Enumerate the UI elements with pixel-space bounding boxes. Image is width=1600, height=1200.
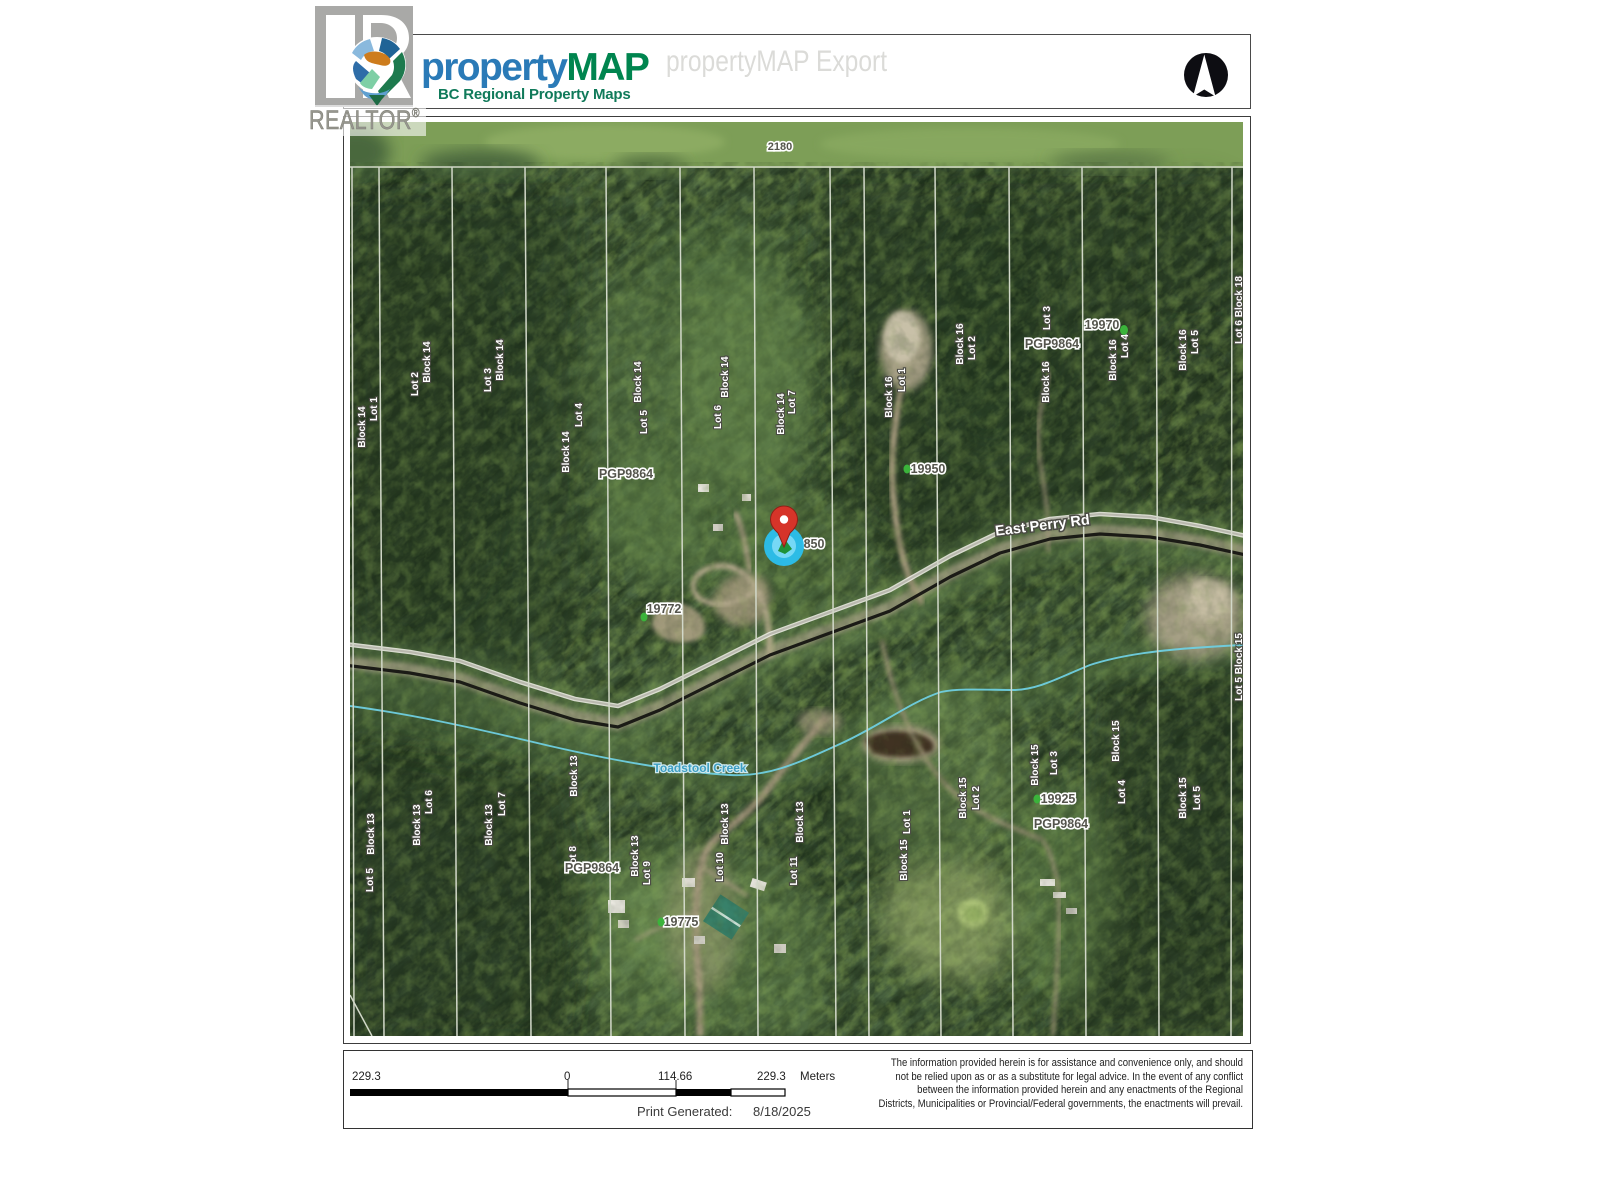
svg-text:Lot 1: Lot 1 — [369, 397, 380, 421]
svg-text:Block 15: Block 15 — [899, 839, 910, 881]
svg-text:PGP9864: PGP9864 — [565, 861, 619, 875]
svg-text:Block 14: Block 14 — [776, 393, 787, 435]
svg-text:Lot 4: Lot 4 — [574, 403, 585, 427]
svg-text:Block 14: Block 14 — [495, 339, 506, 381]
svg-text:19775: 19775 — [664, 915, 699, 929]
svg-text:Toadstool Creek: Toadstool Creek — [653, 761, 746, 775]
svg-text:Lot 4: Lot 4 — [1120, 334, 1131, 358]
svg-text:Block 13: Block 13 — [795, 801, 806, 843]
svg-text:Lot 5: Lot 5 — [1192, 786, 1203, 810]
svg-text:Block 15: Block 15 — [1111, 720, 1122, 762]
svg-text:850: 850 — [804, 537, 825, 551]
svg-text:Lot 1: Lot 1 — [897, 368, 908, 392]
svg-text:Lot 2: Lot 2 — [967, 336, 978, 360]
svg-text:Block 16: Block 16 — [884, 376, 895, 418]
svg-text:19950: 19950 — [911, 462, 946, 476]
svg-text:Lot 7: Lot 7 — [497, 792, 508, 816]
svg-text:Lot 4: Lot 4 — [1117, 780, 1128, 804]
svg-text:Lot 1: Lot 1 — [902, 810, 913, 834]
svg-text:Block 14: Block 14 — [357, 406, 368, 448]
svg-text:Lot 11: Lot 11 — [789, 856, 800, 885]
svg-text:Block 16: Block 16 — [1041, 361, 1052, 403]
svg-text:19772: 19772 — [647, 602, 682, 616]
svg-text:Block 13: Block 13 — [412, 804, 423, 846]
svg-text:Block 15: Block 15 — [1178, 777, 1189, 819]
svg-text:Block 16: Block 16 — [1108, 339, 1119, 381]
svg-text:Block 13: Block 13 — [366, 813, 377, 855]
svg-text:19925: 19925 — [1041, 792, 1076, 806]
svg-text:Block 14: Block 14 — [422, 341, 433, 383]
svg-text:Lot 5 Block 15: Lot 5 Block 15 — [1234, 633, 1243, 701]
svg-text:Block 14: Block 14 — [633, 361, 644, 403]
svg-text:2180: 2180 — [768, 141, 792, 153]
svg-text:Block 16: Block 16 — [955, 323, 966, 365]
svg-text:PGP9864: PGP9864 — [599, 467, 653, 481]
svg-text:Lot 3: Lot 3 — [483, 368, 494, 392]
svg-text:Lot 6 Block 18: Lot 6 Block 18 — [1234, 276, 1243, 344]
svg-text:Lot 6: Lot 6 — [713, 405, 724, 429]
svg-text:Block 14: Block 14 — [720, 356, 731, 398]
svg-text:PGP9864: PGP9864 — [1025, 337, 1079, 351]
svg-text:Block 13: Block 13 — [484, 804, 495, 846]
svg-text:19970: 19970 — [1085, 318, 1120, 332]
svg-text:Lot 5: Lot 5 — [1190, 330, 1201, 354]
svg-text:Block 13: Block 13 — [720, 803, 731, 845]
svg-text:Lot 10: Lot 10 — [715, 852, 726, 882]
svg-text:Lot 5: Lot 5 — [365, 868, 376, 892]
svg-text:Lot 7: Lot 7 — [787, 390, 798, 414]
svg-text:Lot 2: Lot 2 — [410, 372, 421, 396]
svg-text:Lot 6: Lot 6 — [424, 790, 435, 814]
svg-text:PGP9864: PGP9864 — [1034, 817, 1088, 831]
svg-text:Block 15: Block 15 — [958, 777, 969, 819]
svg-text:Block 15: Block 15 — [1030, 744, 1041, 786]
svg-text:Lot 2: Lot 2 — [971, 786, 982, 810]
svg-text:Lot 9: Lot 9 — [642, 861, 653, 885]
svg-text:Lot 3: Lot 3 — [1042, 306, 1053, 330]
svg-text:Block 13: Block 13 — [630, 835, 641, 877]
svg-text:Lot 3: Lot 3 — [1049, 751, 1060, 775]
svg-text:Block 16: Block 16 — [1178, 329, 1189, 371]
svg-text:Block 13: Block 13 — [569, 755, 580, 797]
svg-text:Lot 5: Lot 5 — [639, 410, 650, 434]
svg-text:Block 14: Block 14 — [561, 431, 572, 473]
